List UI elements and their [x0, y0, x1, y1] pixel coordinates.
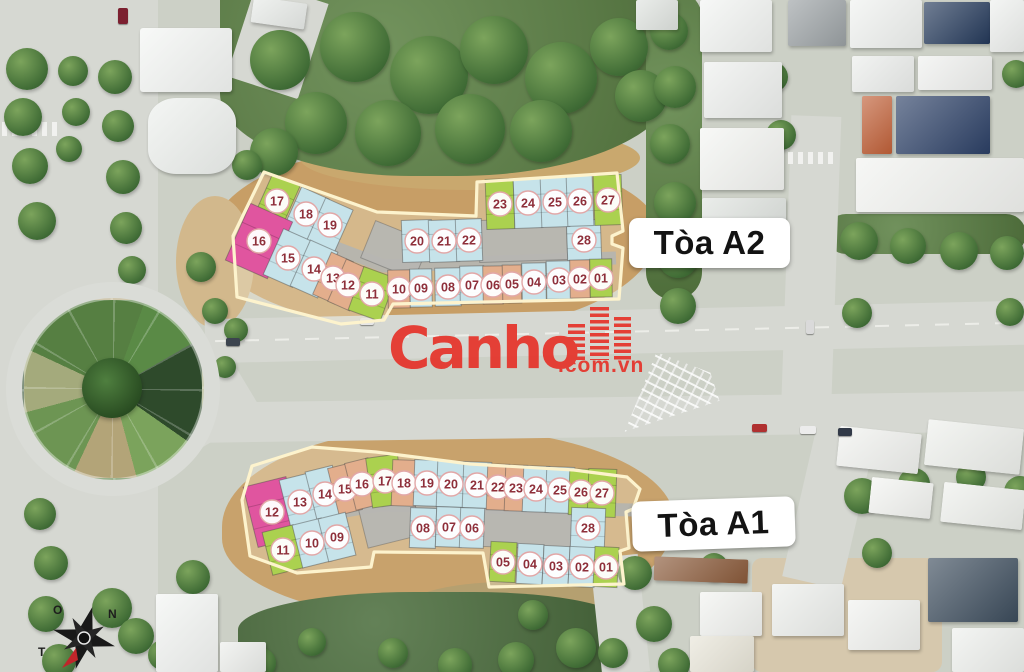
unit-number-A2-21: 21 — [432, 229, 456, 253]
svg-text:04: 04 — [523, 558, 537, 572]
svg-text:27: 27 — [595, 487, 609, 501]
unit-number-A2-17: 17 — [265, 189, 289, 213]
svg-text:24: 24 — [529, 483, 543, 497]
svg-text:25: 25 — [548, 196, 562, 210]
tower-a2-label: Tòa A2 — [629, 218, 790, 268]
unit-number-A1-16: 16 — [350, 472, 374, 496]
svg-text:28: 28 — [581, 522, 595, 536]
compass-letter: O — [53, 603, 62, 617]
svg-text:22: 22 — [491, 481, 505, 495]
canho-brand-text: Canho — [388, 314, 577, 382]
svg-text:20: 20 — [444, 478, 458, 492]
unit-number-A1-24: 24 — [524, 477, 548, 501]
unit-number-A2-15: 15 — [276, 246, 300, 270]
svg-text:08: 08 — [441, 281, 455, 295]
svg-text:04: 04 — [527, 276, 541, 290]
svg-text:28: 28 — [577, 234, 591, 248]
svg-text:05: 05 — [505, 278, 519, 292]
svg-text:22: 22 — [462, 234, 476, 248]
unit-number-A1-07: 07 — [437, 515, 461, 539]
canho-watermark: Canho .com.vn — [388, 302, 768, 386]
svg-text:23: 23 — [493, 198, 507, 212]
unit-number-A1-25: 25 — [548, 478, 572, 502]
svg-text:24: 24 — [521, 197, 535, 211]
unit-number-A2-08: 08 — [436, 275, 460, 299]
svg-text:18: 18 — [299, 208, 313, 222]
svg-text:26: 26 — [574, 486, 588, 500]
svg-text:05: 05 — [496, 556, 510, 570]
svg-text:11: 11 — [365, 288, 378, 302]
unit-number-A2-11: 11 — [360, 282, 384, 306]
unit-number-A1-12: 12 — [260, 500, 284, 524]
svg-text:13: 13 — [293, 496, 307, 510]
svg-text:16: 16 — [252, 235, 266, 249]
svg-text:14: 14 — [318, 488, 332, 502]
svg-text:08: 08 — [416, 522, 430, 536]
svg-text:18: 18 — [397, 477, 411, 491]
svg-text:16: 16 — [355, 478, 369, 492]
compass-needle — [62, 648, 78, 668]
svg-text:12: 12 — [341, 279, 355, 293]
compass-letter: N — [108, 607, 117, 621]
svg-text:09: 09 — [414, 282, 428, 296]
unit-number-A1-10: 10 — [300, 531, 324, 555]
svg-text:10: 10 — [305, 537, 319, 551]
svg-text:17: 17 — [378, 475, 392, 489]
unit-number-A2-20: 20 — [405, 229, 429, 253]
unit-number-A1-08: 08 — [411, 516, 435, 540]
svg-text:10: 10 — [392, 283, 406, 297]
svg-text:12: 12 — [265, 506, 279, 520]
unit-number-A2-09: 09 — [409, 276, 433, 300]
canho-domain-text: .com.vn — [558, 354, 644, 378]
unit-number-A2-26: 26 — [568, 189, 592, 213]
svg-text:01: 01 — [599, 561, 613, 575]
unit-number-A1-03: 03 — [544, 554, 568, 578]
unit-number-A1-28: 28 — [576, 516, 600, 540]
unit-number-A2-28: 28 — [572, 228, 596, 252]
unit-number-A1-09: 09 — [325, 525, 349, 549]
svg-text:26: 26 — [573, 195, 587, 209]
unit-number-A2-12: 12 — [336, 273, 360, 297]
unit-number-A2-16: 16 — [247, 229, 271, 253]
unit-number-A1-19: 19 — [415, 471, 439, 495]
unit-number-A2-27: 27 — [596, 188, 620, 212]
svg-text:14: 14 — [307, 263, 321, 277]
svg-text:23: 23 — [509, 482, 523, 496]
aerial-site-map: 1718191615141312112021222823242526271009… — [0, 0, 1024, 672]
unit-number-A1-11: 11 — [271, 538, 295, 562]
svg-text:15: 15 — [281, 252, 295, 266]
svg-text:21: 21 — [437, 235, 451, 249]
svg-text:07: 07 — [442, 521, 456, 535]
svg-text:27: 27 — [601, 194, 615, 208]
unit-number-A1-20: 20 — [439, 472, 463, 496]
svg-text:20: 20 — [410, 235, 424, 249]
unit-number-A2-23: 23 — [488, 192, 512, 216]
tower-A1-plan: 1213141516171110091819202122232425262708… — [242, 447, 640, 588]
unit-number-A1-04: 04 — [518, 552, 542, 576]
unit-number-A2-24: 24 — [516, 191, 540, 215]
svg-text:03: 03 — [552, 274, 566, 288]
unit-number-A2-19: 19 — [318, 213, 342, 237]
svg-text:06: 06 — [465, 522, 479, 536]
compass-rose: ONT — [36, 588, 146, 672]
unit-number-A1-01: 01 — [594, 555, 618, 579]
unit-number-A1-06: 06 — [460, 516, 484, 540]
buildings-icon — [568, 306, 640, 360]
svg-text:17: 17 — [270, 195, 284, 209]
unit-number-A1-21: 21 — [465, 473, 489, 497]
svg-text:07: 07 — [465, 279, 479, 293]
unit-number-A2-22: 22 — [457, 228, 481, 252]
unit-number-A2-10: 10 — [387, 277, 411, 301]
unit-number-A2-01: 01 — [589, 266, 613, 290]
unit-number-A1-05: 05 — [491, 550, 515, 574]
unit-number-A2-18: 18 — [294, 202, 318, 226]
unit-number-A1-27: 27 — [590, 481, 614, 505]
svg-text:09: 09 — [330, 531, 344, 545]
unit-number-A2-04: 04 — [522, 270, 546, 294]
unit-number-A1-13: 13 — [288, 490, 312, 514]
unit-number-A1-18: 18 — [392, 471, 416, 495]
compass-letter: T — [38, 645, 46, 659]
svg-text:02: 02 — [573, 273, 587, 287]
svg-text:21: 21 — [470, 479, 484, 493]
svg-text:25: 25 — [553, 484, 567, 498]
tower-a1-label: Tòa A1 — [631, 496, 796, 552]
unit-number-A2-25: 25 — [543, 190, 567, 214]
svg-text:06: 06 — [486, 279, 500, 293]
svg-text:02: 02 — [575, 561, 589, 575]
svg-text:03: 03 — [549, 560, 563, 574]
unit-number-A1-02: 02 — [570, 555, 594, 579]
svg-text:19: 19 — [323, 219, 337, 233]
svg-text:19: 19 — [420, 477, 434, 491]
svg-text:11: 11 — [276, 544, 289, 558]
svg-text:01: 01 — [594, 272, 608, 286]
unit-number-A2-05: 05 — [500, 272, 524, 296]
